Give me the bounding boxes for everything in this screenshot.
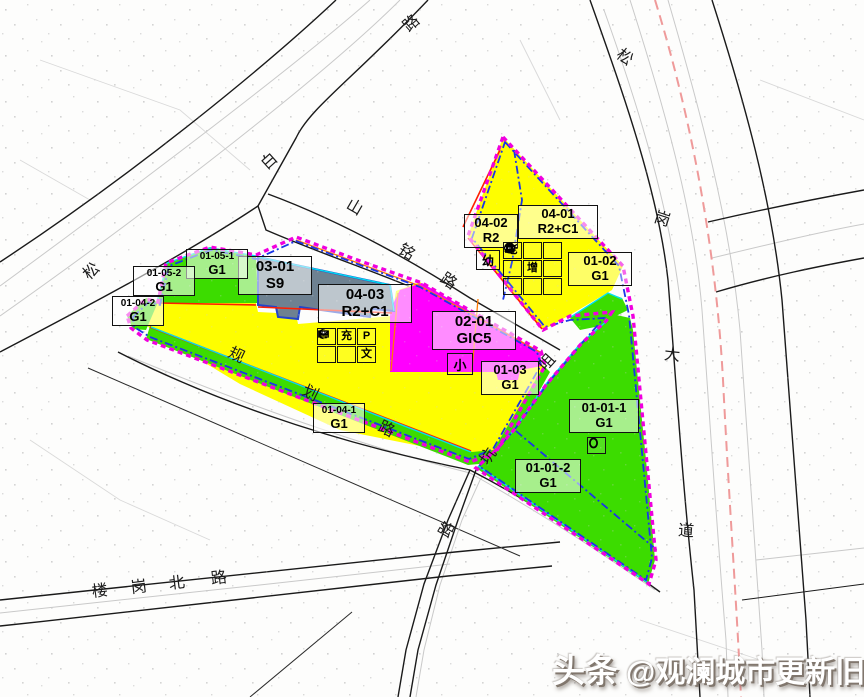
community-service-icon xyxy=(543,260,562,277)
facility-icons-04-01: 老增 xyxy=(503,242,562,295)
road-name-char: 楼 xyxy=(91,583,109,601)
road-name-char: 岗 xyxy=(130,579,148,597)
post-office-icon xyxy=(317,346,336,363)
parcel-label-01-04-2: 01-04-2 G1 xyxy=(112,296,164,326)
watermark-account: @观澜城市更新旧改项目 xyxy=(626,647,864,691)
road-name-char: 路 xyxy=(210,570,228,588)
kindergarten-icon: 幼 xyxy=(476,250,500,270)
community-home-icon xyxy=(543,242,562,259)
canteen-icon xyxy=(523,242,542,259)
market-icon xyxy=(337,346,356,363)
primary-school-icon: 小 xyxy=(447,353,473,375)
ev-charging-icon: 充 xyxy=(337,328,356,345)
road-name-char: 道 xyxy=(677,523,694,540)
parcel-label-03-01: 03-01 S9 xyxy=(238,256,312,295)
pavilion-icon xyxy=(543,278,562,295)
capacity-increase-icon: 增 xyxy=(523,260,542,277)
parcel-label-04-03: 04-03 R2+C1 xyxy=(318,284,412,323)
road-name-char: 北 xyxy=(168,575,186,593)
planning-map: 松 白 路 山 铭 路 规 划 路 咀 坑 路 楼 岗 北 路 松 岗 大 道 … xyxy=(0,0,864,697)
culture-room-icon: 文 xyxy=(357,346,376,363)
parcel-label-01-03: 01-03 G1 xyxy=(481,361,539,395)
parcel-label-01-02: 01-02 G1 xyxy=(568,252,632,286)
parcel-label-01-04-1: 01-04-1 G1 xyxy=(313,403,365,433)
health-center-icon xyxy=(503,260,522,277)
parcel-label-04-01: 04-01 R2+C1 xyxy=(518,205,598,239)
parcel-label-01-01-1: 01-01-1 G1 xyxy=(569,399,639,433)
road-name-char: 大 xyxy=(663,347,681,365)
watermark-platform: 头条 xyxy=(552,644,618,692)
facility-icons-04-03: 充P文 xyxy=(317,328,376,363)
parking-icon: P xyxy=(357,328,376,345)
recycling-icon xyxy=(503,278,522,295)
parcel-label-01-05-1: 01-05-1 G1 xyxy=(186,249,248,279)
public-toilet-round-icon xyxy=(587,437,606,454)
public-toilet-icon xyxy=(523,278,542,295)
watermark: 头条 @观澜城市更新旧改项目 xyxy=(552,644,864,692)
parcel-label-01-01-2: 01-01-2 G1 xyxy=(515,459,581,493)
parcel-label-02-01: 02-01 GIC5 xyxy=(432,311,516,350)
parcel-label-01-05-2: 01-05-2 G1 xyxy=(133,266,195,296)
facility-icons-01-01-1 xyxy=(587,437,609,454)
